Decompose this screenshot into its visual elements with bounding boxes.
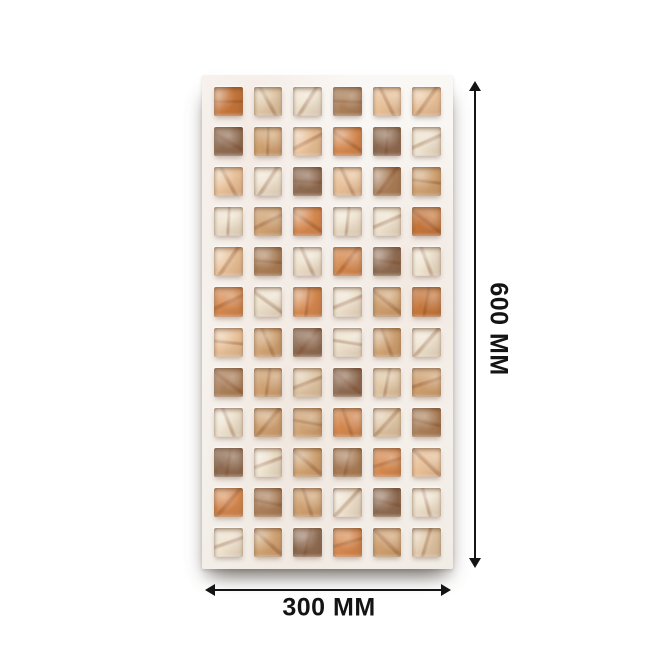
tile-cell [333, 528, 362, 557]
tile-cell [333, 448, 362, 477]
mosaic-grid [202, 75, 453, 569]
tile-cell [373, 207, 402, 236]
tile-cell [333, 207, 362, 236]
tile-cell [254, 448, 283, 477]
tile-cell [412, 207, 441, 236]
tile-cell [333, 247, 362, 276]
tile-cell [293, 87, 322, 116]
tile-cell [373, 87, 402, 116]
tile-cell [412, 328, 441, 357]
tile-cell [214, 287, 243, 316]
tile-cell [412, 247, 441, 276]
tile-cell [412, 488, 441, 517]
arrow-up-icon [469, 81, 481, 91]
arrow-right-icon [441, 584, 451, 596]
tile-cell [373, 247, 402, 276]
tile-cell [254, 127, 283, 156]
tile-cell [373, 167, 402, 196]
tile-cell [254, 287, 283, 316]
product-figure: 600 MM 300 MM [0, 0, 650, 650]
tile-cell [254, 488, 283, 517]
tile-cell [333, 127, 362, 156]
tile-cell [333, 368, 362, 397]
tile-cell [333, 167, 362, 196]
tile-cell [293, 408, 322, 437]
tile-cell [293, 368, 322, 397]
tile-cell [333, 328, 362, 357]
arrow-down-icon [469, 558, 481, 568]
tile-cell [373, 408, 402, 437]
tile-cell [254, 167, 283, 196]
tile-cell [214, 247, 243, 276]
tile-cell [293, 528, 322, 557]
tile-cell [412, 408, 441, 437]
tile-cell [293, 287, 322, 316]
tile-cell [373, 528, 402, 557]
tile-cell [214, 368, 243, 397]
tile-cell [214, 408, 243, 437]
tile-cell [214, 167, 243, 196]
tile-cell [373, 448, 402, 477]
tile-cell [412, 528, 441, 557]
tile-cell [254, 247, 283, 276]
tile-cell [254, 207, 283, 236]
tile-cell [293, 448, 322, 477]
tile-cell [333, 287, 362, 316]
tile-cell [373, 328, 402, 357]
tile-cell [214, 87, 243, 116]
tile-cell [373, 368, 402, 397]
tile-cell [412, 127, 441, 156]
tile-cell [412, 448, 441, 477]
tile-cell [373, 488, 402, 517]
tile-cell [412, 167, 441, 196]
tile-cell [254, 528, 283, 557]
tile-cell [254, 328, 283, 357]
tile-cell [214, 127, 243, 156]
tile-cell [373, 287, 402, 316]
height-dimension-label: 600 MM [484, 282, 513, 375]
tile-cell [293, 247, 322, 276]
width-dimension-line [214, 589, 442, 591]
tile-cell [412, 287, 441, 316]
tile-cell [214, 207, 243, 236]
tile-cell [214, 528, 243, 557]
tile-cell [293, 488, 322, 517]
width-dimension-label: 300 MM [282, 594, 375, 623]
tile-product-image [202, 75, 453, 569]
tile-cell [412, 368, 441, 397]
tile-cell [333, 87, 362, 116]
tile-cell [254, 368, 283, 397]
tile-cell [293, 167, 322, 196]
height-dimension-line [474, 90, 476, 560]
tile-cell [293, 127, 322, 156]
tile-cell [214, 328, 243, 357]
tile-cell [293, 207, 322, 236]
tile-cell [214, 488, 243, 517]
arrow-left-icon [205, 584, 215, 596]
tile-cell [333, 488, 362, 517]
tile-cell [412, 87, 441, 116]
tile-cell [254, 87, 283, 116]
tile-cell [214, 448, 243, 477]
tile-cell [373, 127, 402, 156]
tile-cell [333, 408, 362, 437]
tile-cell [254, 408, 283, 437]
tile-cell [293, 328, 322, 357]
